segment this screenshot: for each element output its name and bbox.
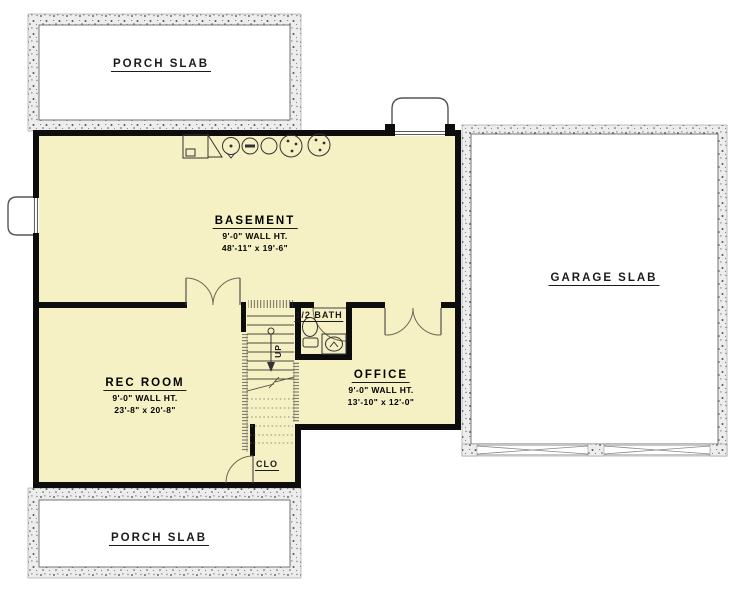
porch-slab-top: [28, 14, 301, 131]
office-dimensions: 13'-10" x 12'-0": [348, 397, 415, 407]
basement-wall-height: 9'-0" WALL HT.: [213, 231, 298, 241]
half-bath-label: 1/2 BATH: [294, 310, 343, 322]
rec-room-name: REC ROOM: [103, 377, 186, 391]
window-well-top: [385, 98, 455, 136]
basement-label: BASEMENT 9'-0" WALL HT. 48'-11" x 19'-6": [213, 211, 298, 253]
office-wall-height: 9'-0" WALL HT.: [348, 385, 415, 395]
floor-plan: UP: [0, 0, 750, 606]
porch-top-label: PORCH SLAB: [111, 58, 211, 72]
stair-header-hatch: [248, 300, 293, 308]
rec-room-label: REC ROOM 9'-0" WALL HT. 23'-8" x 20'-8": [103, 373, 186, 415]
rec-room-wall-height: 9'-0" WALL HT.: [103, 393, 186, 403]
office-name: OFFICE: [352, 369, 410, 383]
garage-label: GARAGE SLAB: [549, 272, 660, 286]
basement-dimensions: 48'-11" x 19'-6": [213, 243, 298, 253]
garage-door-edge: [462, 444, 727, 456]
closet-label: CLO: [255, 459, 279, 471]
window-well-left: [8, 190, 39, 241]
basement-name: BASEMENT: [213, 215, 298, 229]
garage-slab: [462, 125, 727, 456]
porch-bottom-label: PORCH SLAB: [109, 532, 209, 546]
office-label: OFFICE 9'-0" WALL HT. 13'-10" x 12'-0": [348, 365, 415, 407]
stair-up-label: UP: [273, 344, 283, 358]
floor-plan-linework: UP: [0, 0, 750, 606]
rec-room-dimensions: 23'-8" x 20'-8": [103, 405, 186, 415]
